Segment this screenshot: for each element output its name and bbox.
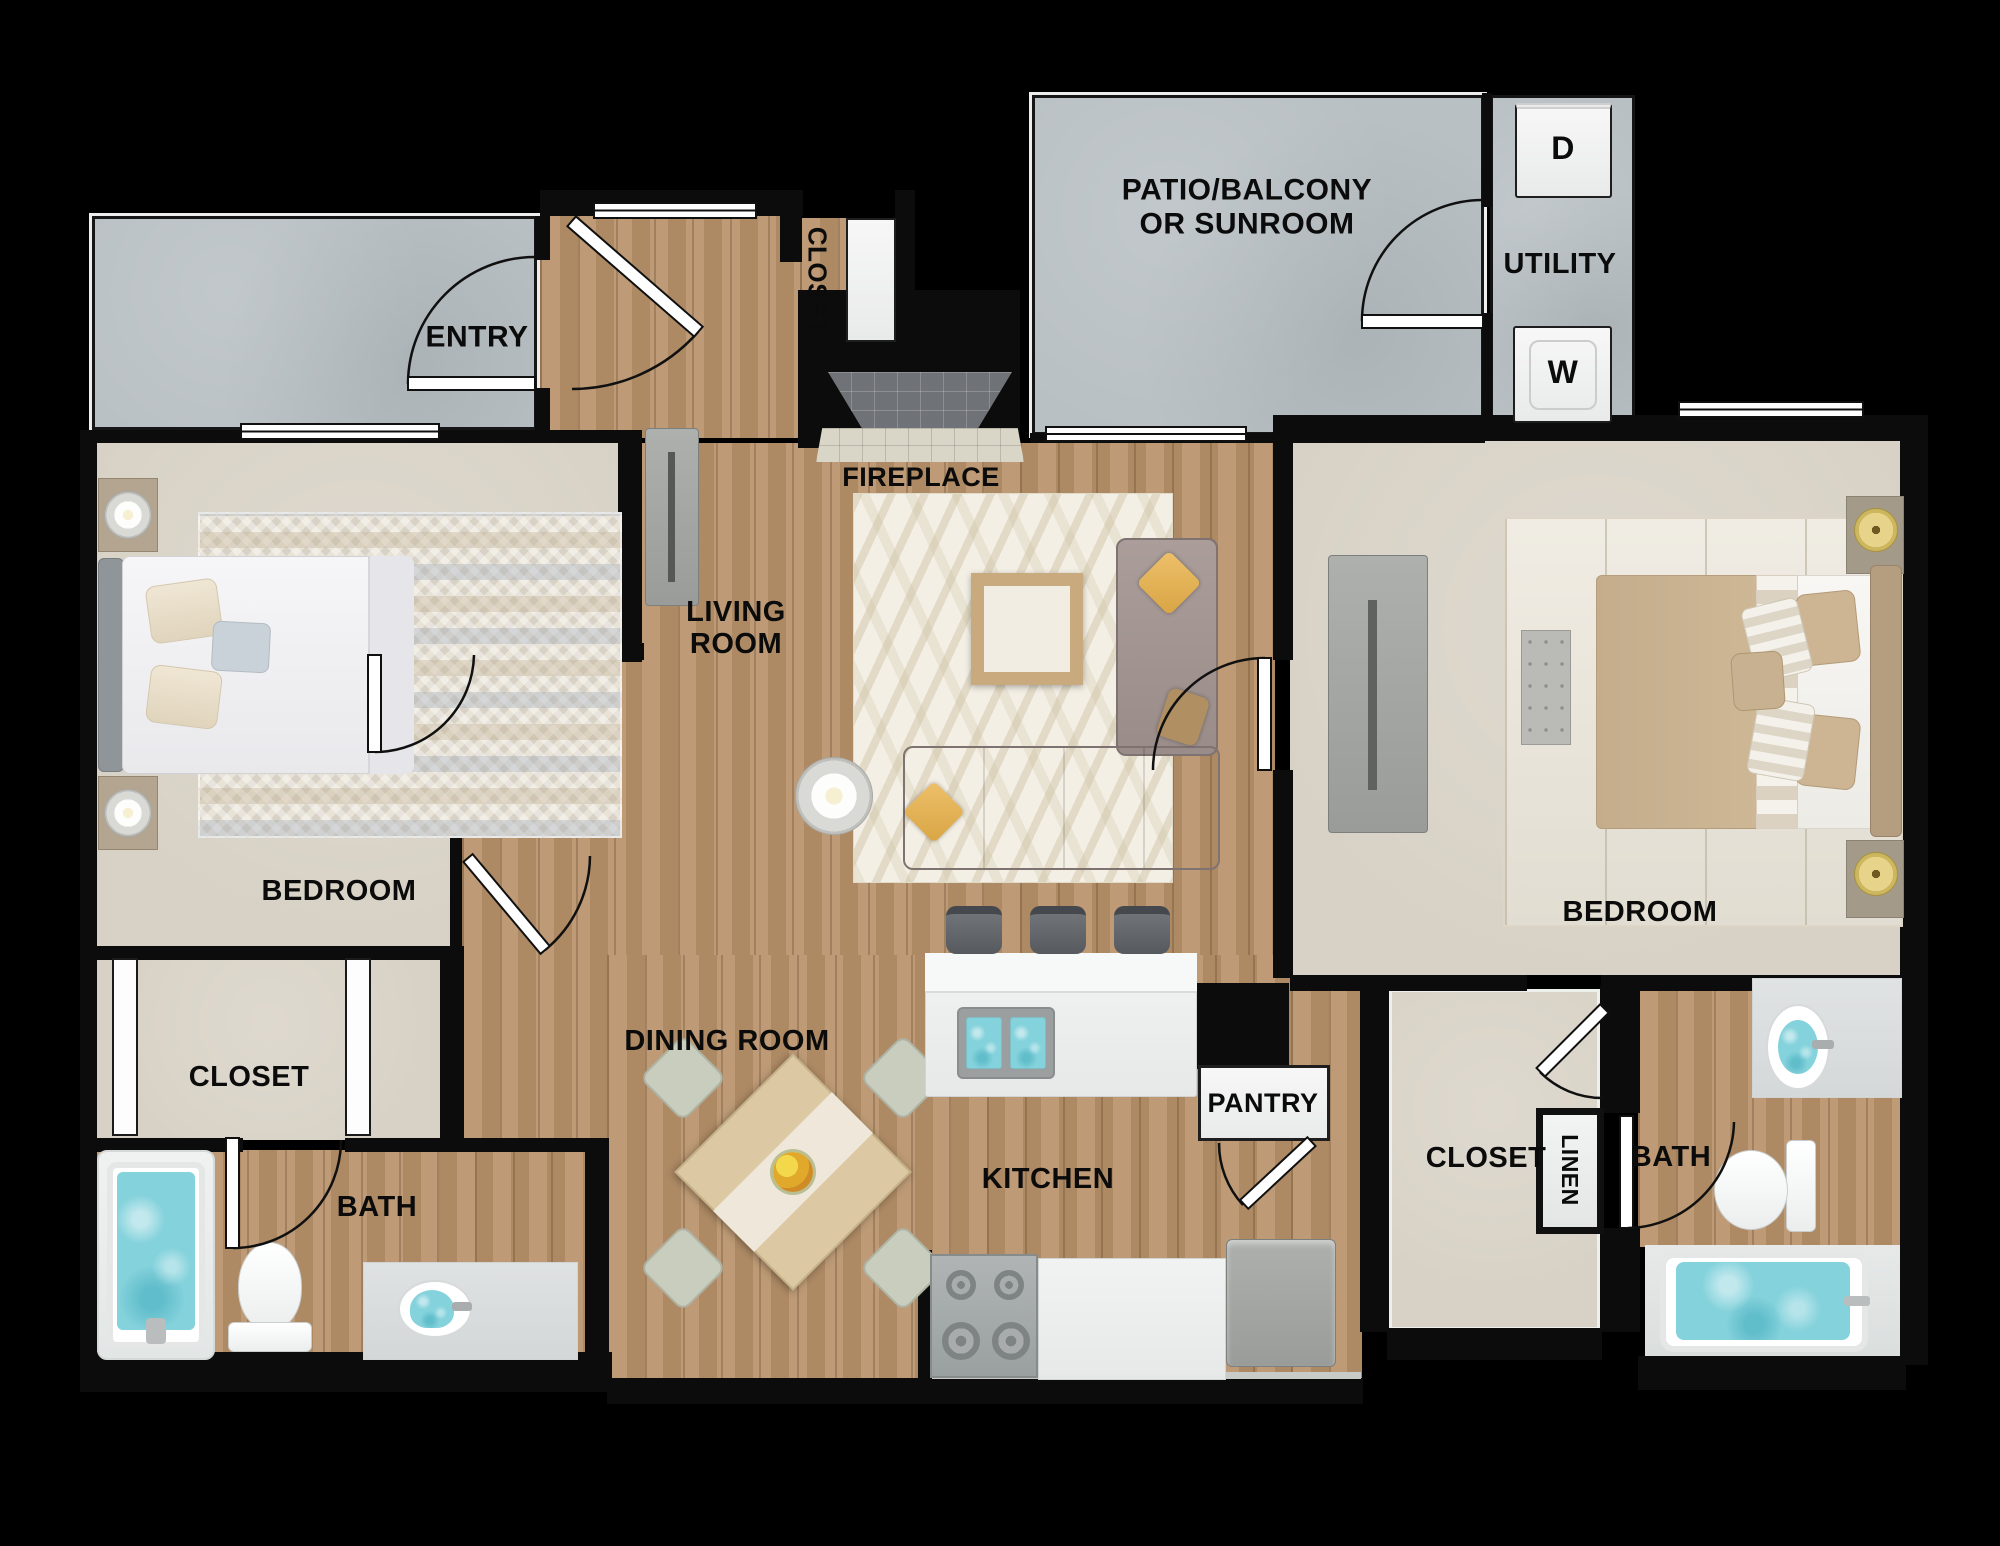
wall <box>1195 983 1289 1069</box>
kitchen-counter <box>1038 1258 1226 1380</box>
sink-basin <box>966 1017 1002 1069</box>
pillow <box>211 621 272 674</box>
wall <box>535 216 550 260</box>
closet-left-floor <box>95 958 443 1140</box>
window-slider <box>1045 426 1247 442</box>
burner <box>992 1322 1030 1360</box>
sink-faucet <box>1812 1040 1834 1049</box>
closet-right-label: CLOSET <box>1426 1143 1547 1173</box>
patio-label-line1: PATIO/BALCONY <box>1122 174 1372 206</box>
coffee-table <box>971 573 1083 685</box>
closet-door-track <box>345 958 371 1136</box>
pillow <box>145 664 224 730</box>
patio-floor <box>1032 95 1484 435</box>
bedroom-right-label: BEDROOM <box>1563 897 1718 927</box>
wall <box>1600 985 1640 1113</box>
refrigerator <box>1226 1239 1336 1367</box>
living-label-line1: LIVING <box>686 597 786 627</box>
toilet-tank <box>1786 1140 1816 1232</box>
stove <box>930 1254 1038 1378</box>
wall <box>607 1378 1363 1404</box>
wall <box>1900 415 1928 1365</box>
wall <box>95 946 443 960</box>
closet-left-label: CLOSET <box>189 1062 310 1092</box>
floor-lamp <box>795 757 873 835</box>
wall <box>440 946 464 1150</box>
toilet-bowl <box>238 1242 302 1330</box>
lamp <box>1854 508 1898 552</box>
pantry-label: PANTRY <box>1208 1089 1319 1117</box>
bench <box>1521 630 1571 745</box>
washer-label: W <box>1548 356 1579 390</box>
toilet-tank <box>228 1322 312 1352</box>
window <box>593 202 757 219</box>
dresser-slot <box>1368 600 1377 790</box>
entry-label: ENTRY <box>425 321 528 353</box>
toilet-bowl <box>1714 1150 1788 1230</box>
island-countertop-edge <box>925 953 1197 993</box>
tub-faucet <box>146 1318 166 1344</box>
linen-label: LINEN <box>1558 1134 1582 1206</box>
wall <box>1387 1328 1602 1360</box>
burner <box>994 1270 1024 1300</box>
bed-headboard <box>1870 565 1902 837</box>
wall <box>1360 975 1389 1332</box>
wall <box>345 1138 609 1152</box>
wall <box>1482 313 1492 435</box>
hall-closet-door-panel <box>846 218 896 342</box>
bathtub-water <box>117 1172 195 1330</box>
hall-closet-label: CLOSET <box>803 227 830 335</box>
wall <box>780 210 802 262</box>
floor-plan: ENTRY CLOSET PATIO/BALCONY OR SUNROOM UT… <box>0 0 2000 1546</box>
wall <box>1290 975 1527 991</box>
bedroom-left-label: BEDROOM <box>262 876 417 906</box>
lamp <box>104 491 152 539</box>
dryer-label: D <box>1551 132 1575 166</box>
burner <box>942 1322 980 1360</box>
bed-headboard <box>98 558 124 772</box>
wall <box>585 1148 609 1360</box>
wall <box>1273 770 1293 978</box>
wall <box>1273 430 1293 660</box>
bar-stool <box>1114 906 1170 954</box>
wall <box>1638 1356 1906 1390</box>
bath-right-label: BATH <box>1631 1142 1711 1172</box>
fireplace-label: FIREPLACE <box>842 463 1000 491</box>
lamp <box>1854 852 1898 896</box>
lamp <box>104 789 152 837</box>
hall-top-floor <box>540 216 802 438</box>
bath-left-label: BATH <box>337 1192 417 1222</box>
bed-duvet-fold <box>368 556 414 774</box>
window <box>1678 401 1864 418</box>
wall <box>80 430 97 1362</box>
sink-faucet <box>452 1302 472 1311</box>
bar-stool <box>1030 906 1086 954</box>
utility-label: UTILITY <box>1503 249 1616 279</box>
pillow <box>1730 650 1786 711</box>
window <box>240 423 440 440</box>
tv-screen <box>668 452 675 582</box>
sink-basin <box>410 1290 454 1328</box>
sink-basin <box>1010 1017 1046 1069</box>
fireplace-hearth <box>816 428 1024 462</box>
flower-centerpiece <box>773 1152 813 1192</box>
wall <box>1600 1228 1640 1332</box>
tub-faucet <box>1844 1296 1870 1306</box>
wall <box>1482 93 1492 207</box>
kitchen-label: KITCHEN <box>982 1164 1114 1194</box>
bar-stool <box>946 906 1002 954</box>
closet-door-track <box>112 958 138 1136</box>
burner <box>946 1270 976 1300</box>
patio-label-line2: OR SUNROOM <box>1140 208 1355 240</box>
dining-label: DINING ROOM <box>624 1026 829 1056</box>
living-label-line2: ROOM <box>690 629 782 659</box>
bathtub-water <box>1676 1262 1850 1340</box>
dresser <box>1328 555 1428 833</box>
